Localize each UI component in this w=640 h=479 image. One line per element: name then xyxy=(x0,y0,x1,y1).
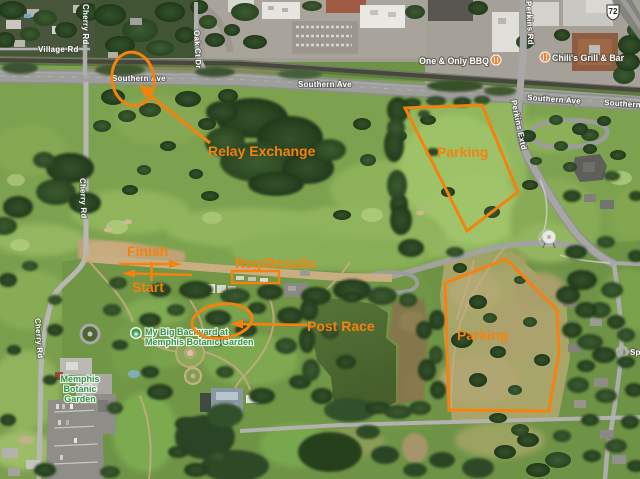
svg-text:Village Rd: Village Rd xyxy=(38,45,79,54)
svg-text:Cherry Rd: Cherry Rd xyxy=(78,178,88,219)
svg-text:Post Race: Post Race xyxy=(307,318,375,334)
svg-text:Southern Ave: Southern Ave xyxy=(298,80,352,89)
svg-text:Start: Start xyxy=(132,279,164,295)
svg-text:Southern Ave: Southern Ave xyxy=(112,74,166,83)
svg-text:My Big Backyard at: My Big Backyard at xyxy=(145,327,228,337)
svg-text:Sp: Sp xyxy=(630,348,640,357)
svg-text:Reg/Results: Reg/Results xyxy=(235,255,316,271)
svg-text:Parking: Parking xyxy=(437,144,488,160)
svg-text:❀: ❀ xyxy=(133,331,139,338)
svg-text:Finish: Finish xyxy=(127,243,168,259)
svg-text:Relay Exchange: Relay Exchange xyxy=(208,143,316,159)
svg-text:Chili's Grill & Bar: Chili's Grill & Bar xyxy=(552,53,625,63)
svg-text:Memphis Botanic Garden: Memphis Botanic Garden xyxy=(145,337,254,347)
svg-text:Memphis: Memphis xyxy=(60,374,99,384)
svg-text:Garden: Garden xyxy=(64,394,96,404)
svg-text:Botanic: Botanic xyxy=(63,384,96,394)
svg-text:72: 72 xyxy=(609,7,618,16)
svg-text:One & Only BBQ: One & Only BBQ xyxy=(419,56,489,66)
svg-text:Cherry Rd: Cherry Rd xyxy=(81,4,90,44)
svg-text:Parking: Parking xyxy=(457,327,508,343)
